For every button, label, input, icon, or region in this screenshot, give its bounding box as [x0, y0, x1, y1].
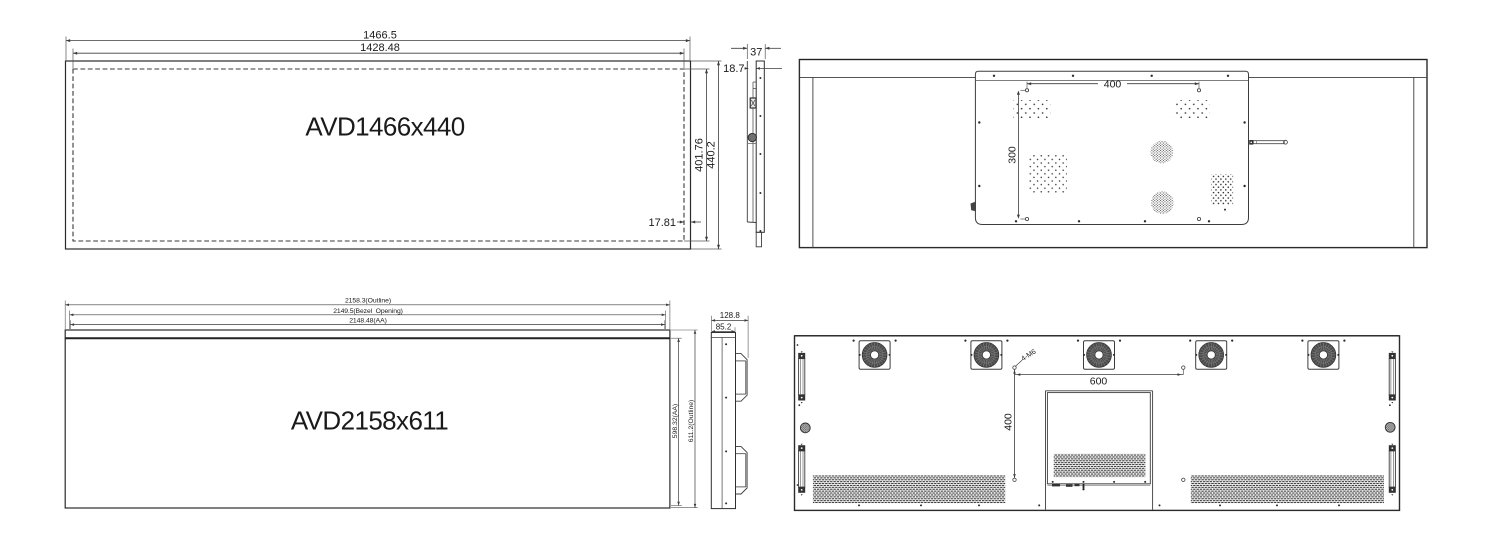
svg-text:2158.3(Outline): 2158.3(Outline) [345, 298, 391, 305]
svg-text:37: 37 [750, 47, 762, 59]
svg-text:128.8: 128.8 [720, 311, 741, 320]
svg-text:611.2(Outline): 611.2(Outline) [688, 400, 695, 443]
svg-text:400: 400 [1104, 79, 1122, 91]
svg-text:17.81: 17.81 [648, 217, 676, 229]
svg-text:AVD1466x440: AVD1466x440 [305, 112, 464, 142]
svg-text:85.2: 85.2 [716, 323, 732, 332]
svg-text:1466.5: 1466.5 [363, 29, 397, 41]
svg-text:2148.48(AA): 2148.48(AA) [349, 318, 387, 325]
svg-text:598.32(AA): 598.32(AA) [672, 404, 679, 438]
svg-text:300: 300 [1007, 146, 1019, 164]
svg-text:400: 400 [1003, 413, 1015, 431]
svg-text:1428.48: 1428.48 [360, 42, 400, 54]
svg-text:600: 600 [1090, 375, 1108, 387]
svg-text:2149.5(Bezel Opening): 2149.5(Bezel Opening) [333, 308, 403, 315]
svg-text:AVD2158x611: AVD2158x611 [291, 406, 448, 436]
svg-text:18.7: 18.7 [723, 63, 744, 75]
svg-text:440.2: 440.2 [706, 141, 718, 169]
svg-text:401.76: 401.76 [694, 138, 706, 172]
